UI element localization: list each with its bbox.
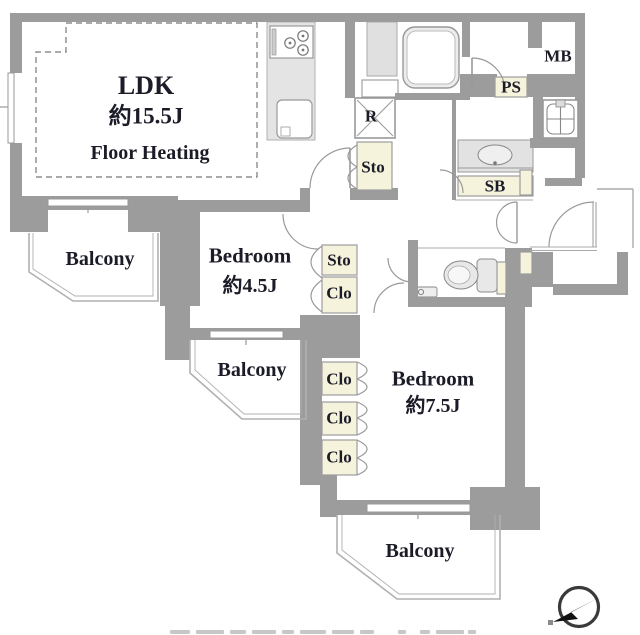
closet-2-label: Clo (326, 410, 352, 427)
refrigerator-label: R (365, 108, 377, 125)
balcony-middle-label: Balcony (218, 360, 287, 380)
ldk-size-label: 約15.5J (109, 105, 184, 128)
bedroom-large-size-label: 約7.5J (406, 396, 461, 416)
closet-3-label: Clo (326, 449, 352, 466)
ps-label: PS (501, 79, 521, 96)
kitchen-counter (267, 22, 315, 140)
closet-upper-label: Clo (326, 285, 352, 302)
washer-pan-icon (543, 100, 578, 138)
floorplan-drawing (0, 0, 640, 635)
window-ldk-bottom (48, 199, 128, 206)
window-bedroom-small (210, 331, 283, 338)
mb-wall-step (528, 74, 557, 97)
storage-bedroom-label: Sto (327, 252, 351, 269)
balcony-bottom-label: Balcony (386, 541, 455, 561)
floorplan-page: LDK 約15.5J Floor Heating MB PS R Sto SB … (0, 0, 640, 635)
window-ldk-left (8, 73, 14, 143)
bedroom-small-size-label: 約4.5J (223, 276, 278, 296)
laundry-space (362, 22, 398, 97)
window-bedroom-large (367, 504, 470, 512)
ldk-note-label: Floor Heating (90, 143, 209, 163)
vanity-basin-icon (458, 140, 533, 172)
balcony-left-label: Balcony (66, 249, 135, 269)
ldk-name-label: LDK (118, 73, 174, 99)
mb-label: MB (544, 48, 571, 65)
storage-hall-label: Sto (361, 159, 385, 176)
closet-1-label: Clo (326, 371, 352, 388)
bathtub-icon (403, 27, 459, 88)
shoe-box-label: SB (485, 178, 506, 195)
bedroom-large-name-label: Bedroom (392, 369, 474, 390)
bedroom-small-name-label: Bedroom (209, 246, 291, 267)
